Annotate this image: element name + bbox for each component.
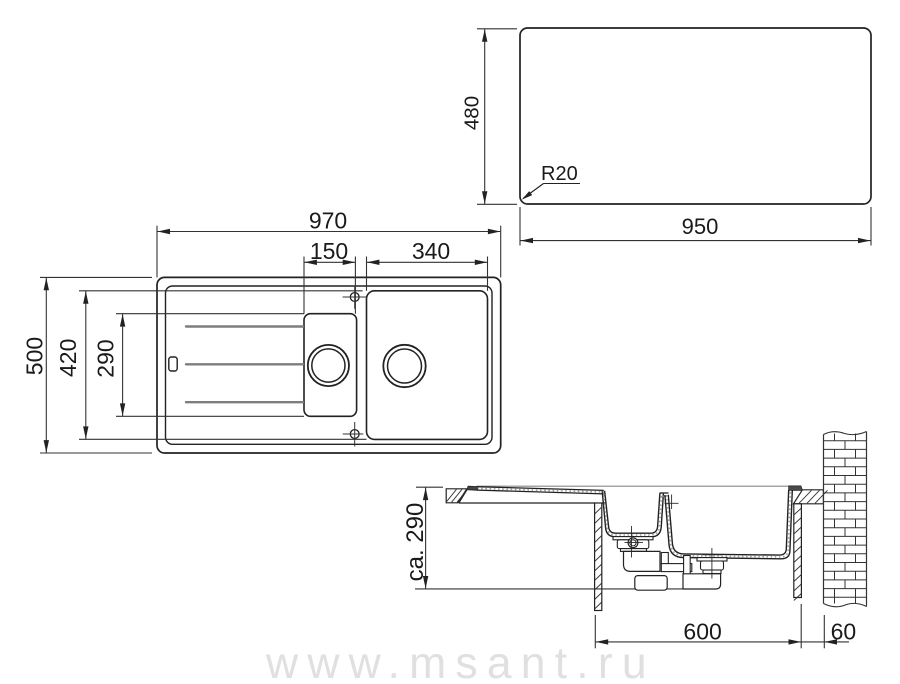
svg-text:970: 970 xyxy=(309,208,347,234)
svg-text:www.msant.ru: www.msant.ru xyxy=(265,639,656,684)
svg-text:150: 150 xyxy=(310,238,348,264)
svg-text:420: 420 xyxy=(55,339,81,377)
svg-text:290: 290 xyxy=(92,339,118,377)
svg-text:R20: R20 xyxy=(541,163,578,185)
svg-text:600: 600 xyxy=(683,618,721,644)
svg-text:60: 60 xyxy=(831,618,857,644)
svg-text:480: 480 xyxy=(461,96,484,130)
svg-text:ca. 290: ca. 290 xyxy=(402,503,429,582)
svg-text:500: 500 xyxy=(22,337,48,375)
svg-text:340: 340 xyxy=(412,238,450,264)
svg-text:950: 950 xyxy=(682,214,719,239)
